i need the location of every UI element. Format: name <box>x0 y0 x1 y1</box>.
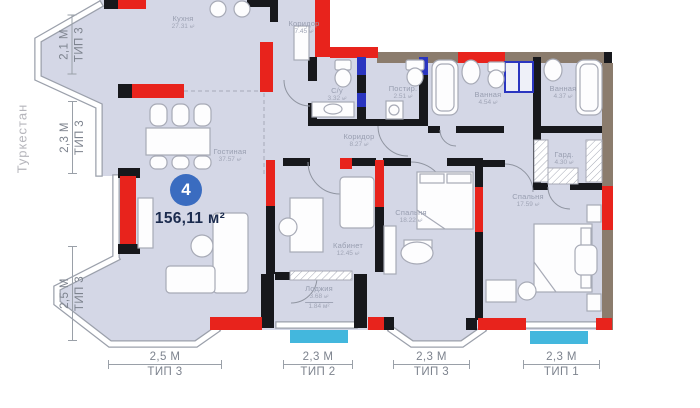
dimension-line <box>72 246 73 341</box>
wardrobe <box>384 226 396 274</box>
toilet <box>488 70 504 88</box>
sink <box>544 59 562 81</box>
armchair <box>575 245 597 275</box>
floor-plan-drawing <box>0 0 700 408</box>
street-name: Туркестан <box>15 99 30 179</box>
dimension-line <box>72 101 73 174</box>
unit-number-badge: 4 <box>170 174 202 206</box>
dimension-left-1: 2,1 М ТИП 3 <box>59 15 86 75</box>
sink <box>462 60 480 84</box>
sofa <box>166 266 215 293</box>
dimension-line <box>523 364 600 365</box>
sink <box>324 104 342 114</box>
study-couch <box>340 177 374 228</box>
dining-chair <box>150 156 167 169</box>
dimension-bottom-1: 2,5 М ТИП 3 <box>108 351 222 378</box>
dining-chair <box>194 104 211 126</box>
pillow <box>447 174 471 183</box>
vanity-stool <box>401 242 433 264</box>
dimension-bottom-2: 2,3 М ТИП 2 <box>283 351 353 378</box>
total-area-label: 156,11 м² <box>155 210 225 228</box>
dimension-left-2: 2,3 М ТИП 3 <box>59 101 86 174</box>
console-shelf <box>138 198 153 248</box>
stool <box>518 282 536 300</box>
dining-chair <box>194 156 211 169</box>
dimension-bottom-4: 2,3 М ТИП 1 <box>523 351 600 378</box>
pillow <box>420 174 444 183</box>
dining-table <box>146 128 210 155</box>
dining-chair <box>150 104 167 126</box>
dimension-line <box>283 364 353 365</box>
floor-plan-page: Туркестан 4 156,11 м² Кухня 27.31 м² Кор… <box>0 0 700 408</box>
dimension-line <box>393 364 470 365</box>
dresser <box>486 280 516 302</box>
toilet <box>335 69 351 87</box>
toilet <box>407 68 423 86</box>
coffee-table <box>191 235 213 257</box>
dimension-left-3: 2,5 М ТИП 3 <box>59 246 86 341</box>
dining-chair <box>172 104 189 126</box>
dimension-bottom-3: 2,3 М ТИП 3 <box>393 351 470 378</box>
kitchen-sink-bowl <box>210 1 226 17</box>
kitchen-sink-bowl <box>234 1 250 17</box>
dimension-line <box>108 364 222 365</box>
nightstand <box>587 294 601 311</box>
desk-chair <box>279 218 297 236</box>
dining-chair <box>172 156 189 169</box>
dimension-line <box>72 15 73 75</box>
hall-closet <box>294 26 309 60</box>
nightstand <box>587 205 601 222</box>
